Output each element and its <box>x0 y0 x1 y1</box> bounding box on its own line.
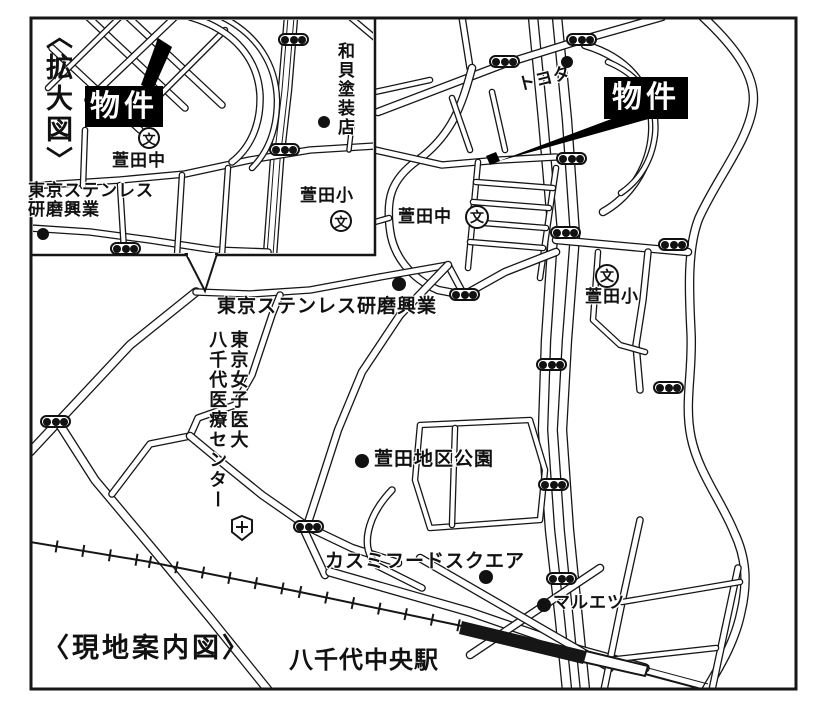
label-tokyo-stainless-inset: 東京ステンレス 研磨興業 <box>28 181 154 219</box>
dot-maruetsu <box>537 598 551 612</box>
inset-title: 〈拡大図〉 <box>38 22 77 177</box>
label-tokyo-stainless: 東京ステンレス研磨興業 <box>217 296 437 317</box>
label-wakai-paint-shop: 和貝塗装店 <box>334 42 354 137</box>
traffic-light-icon <box>110 242 141 255</box>
traffic-light-icon <box>269 143 300 156</box>
traffic-light-icon <box>550 226 581 239</box>
school-icon-kayada-elementary: 文 <box>595 264 619 288</box>
traffic-light-icon <box>40 415 71 428</box>
label-property-inset: 物件 <box>85 86 163 127</box>
traffic-light-icon <box>293 520 324 533</box>
dot-tokyo-stainless-inset <box>37 228 49 240</box>
dot-kayada-district-park <box>355 454 369 468</box>
dot-kasumi-food-square <box>479 570 493 584</box>
traffic-light-icon <box>556 152 587 165</box>
label-kayada-elementary-inset: 萱田小 <box>300 186 354 205</box>
label-yachiyo-medical-center: 東京女子医大 八千代医療センター <box>206 330 248 510</box>
school-icon-kayada-junior-high: 文 <box>465 205 489 229</box>
label-kayada-junior-high-inset: 萱田中 <box>112 151 166 170</box>
dot-wakai-paint-shop <box>318 116 330 128</box>
label-overlay: 物件萱田中東京ステンレス 研磨興業和貝塗装店萱田小トヨタ物件萱田中萱田小東京ステ… <box>0 0 819 712</box>
label-kayada-junior-high: 萱田中 <box>398 207 452 226</box>
school-icon-kayada-elementary-inset: 文 <box>330 210 352 232</box>
label-kayada-elementary: 萱田小 <box>585 287 639 306</box>
traffic-light-icon <box>489 55 520 68</box>
dot-toyota <box>561 56 573 68</box>
map-title: 〈現地案内図〉 <box>42 626 252 665</box>
label-property-main: 物件 <box>604 77 688 119</box>
traffic-light-icon <box>278 33 309 46</box>
site-guide-map: 物件萱田中東京ステンレス 研磨興業和貝塗装店萱田小トヨタ物件萱田中萱田小東京ステ… <box>0 0 819 712</box>
school-icon-kayada-junior-high-inset: 文 <box>138 127 160 149</box>
traffic-light-icon <box>653 381 684 394</box>
label-yachiyo-chuo-station: 八千代中央駅 <box>289 648 439 675</box>
traffic-light-icon <box>658 238 689 251</box>
traffic-light-icon <box>566 33 597 46</box>
label-maruetsu: マルエツ <box>553 593 625 612</box>
label-kasumi-food-square: カスミフードスクエア <box>325 551 525 572</box>
traffic-light-icon <box>546 572 577 585</box>
traffic-light-icon <box>538 478 569 491</box>
dot-tokyo-stainless <box>392 277 406 291</box>
label-kayada-district-park: 萱田地区公園 <box>374 449 494 470</box>
traffic-light-icon <box>449 288 480 301</box>
traffic-light-icon <box>536 358 567 371</box>
